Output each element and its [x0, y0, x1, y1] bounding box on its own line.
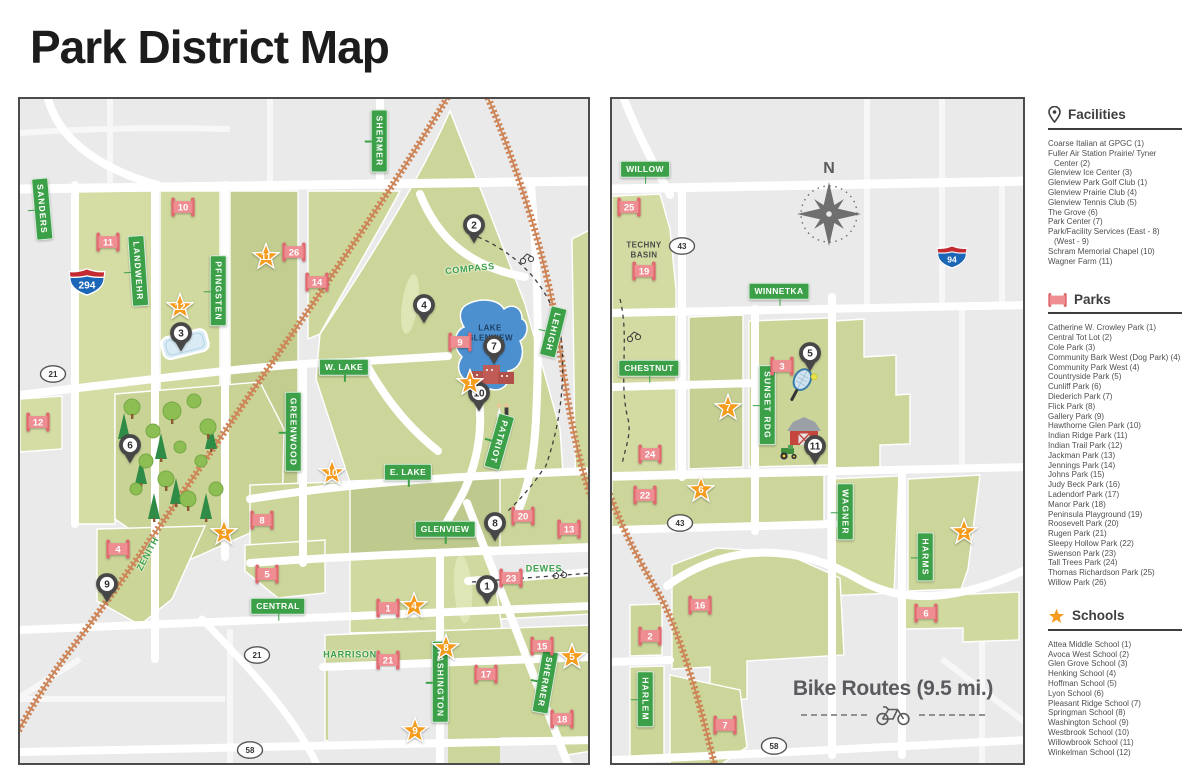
compass-rose: N: [794, 157, 864, 249]
legend-item: Tall Trees Park (24): [1048, 558, 1182, 568]
legend-item: Johns Park (15): [1048, 470, 1182, 480]
school-marker-11: 11: [252, 243, 280, 270]
svg-text:18: 18: [557, 714, 568, 725]
park-marker-1: 1: [376, 599, 400, 618]
facility-marker-6: 6: [118, 434, 142, 464]
route-shield-43: 43: [667, 514, 694, 532]
street-label-chestnut: CHESTNUT: [618, 360, 679, 377]
legend-item: Hoffman School (5): [1048, 679, 1182, 689]
svg-text:11: 11: [261, 252, 272, 263]
svg-text:17: 17: [481, 669, 492, 680]
legend-item: Avoca West School (2): [1048, 650, 1182, 660]
facility-marker-9: 9: [95, 573, 119, 603]
park-marker-9: 9: [448, 333, 472, 352]
legend-item: Indian Ridge Park (11): [1048, 431, 1182, 441]
park-marker-12: 12: [26, 413, 50, 432]
legend-item: Fuller Air Station Prairie/ Tyner Center…: [1048, 149, 1182, 169]
svg-text:8: 8: [492, 519, 498, 530]
svg-text:9: 9: [104, 580, 110, 591]
legend-item: Wagner Farm (11): [1048, 257, 1182, 267]
park-marker-8: 8: [250, 511, 274, 530]
interstate-shield-294: 294: [69, 268, 106, 296]
legend-item: Jackman Park (13): [1048, 451, 1182, 461]
legend-item: Winkelman School (12): [1048, 748, 1182, 758]
svg-text:3: 3: [221, 528, 227, 539]
street-label-wagner: WAGNER: [837, 483, 854, 540]
facility-marker-7: 7: [482, 335, 506, 365]
park-marker-18: 18: [550, 710, 574, 729]
interstate-shield-94: 94: [937, 243, 968, 271]
svg-text:294: 294: [79, 280, 96, 291]
legend-section-facilities: Facilities Coarse Italian at GPGC (1)Ful…: [1048, 106, 1182, 266]
park-marker-5: 5: [255, 565, 279, 584]
route-shield-58: 58: [761, 737, 788, 755]
facility-marker-2: 2: [462, 214, 486, 244]
dashed-line: [801, 714, 867, 716]
legend-item: Willow Park (26): [1048, 578, 1182, 588]
route-shield-58: 58: [237, 741, 264, 759]
bike-routes-note: Bike Routes (9.5 mi.): [777, 677, 1009, 726]
legend-item: Washington School (9): [1048, 718, 1182, 728]
legend-item: Cunliff Park (6): [1048, 382, 1182, 392]
facility-marker-4: 4: [412, 294, 436, 324]
map-panel-east: N Bike Routes (9.5 mi.): [610, 97, 1025, 765]
street-label-harlem: HARLEM: [637, 671, 654, 727]
school-marker-3: 3: [210, 519, 238, 546]
school-star-icon: [1048, 608, 1065, 624]
legend-item: Jennings Park (14): [1048, 461, 1182, 471]
park-marker-14: 14: [305, 273, 329, 292]
svg-text:3: 3: [178, 329, 184, 340]
facility-marker-1: 1: [475, 575, 499, 605]
legend-facilities-list: Coarse Italian at GPGC (1)Fuller Air Sta…: [1048, 139, 1182, 266]
legend-item: Flick Park (8): [1048, 402, 1182, 412]
legend-item: Sleepy Hollow Park (22): [1048, 539, 1182, 549]
divider: [1048, 128, 1182, 130]
legend-item: Peninsula Playground (19): [1048, 510, 1182, 520]
legend-item: Manor Park (18): [1048, 500, 1182, 510]
legend-item: Westbrook School (10): [1048, 728, 1182, 738]
legend-item: Attea Middle School (1): [1048, 640, 1182, 650]
legend-item: Judy Beck Park (16): [1048, 480, 1182, 490]
svg-text:15: 15: [537, 641, 548, 652]
dashed-line: [919, 714, 985, 716]
street-label-glenview: GLENVIEW: [415, 521, 476, 538]
legend-item: Thomas Richardson Park (25): [1048, 568, 1182, 578]
legend: Facilities Coarse Italian at GPGC (1)Ful…: [1048, 106, 1182, 757]
legend-item: Catherine W. Crowley Park (1): [1048, 323, 1182, 333]
street-label-w-lake: W. LAKE: [319, 359, 369, 376]
school-marker-12: 12: [166, 293, 194, 320]
street-label-e-lake: E. LAKE: [384, 464, 432, 481]
legend-item: Schram Memorial Chapel (10): [1048, 247, 1182, 257]
route-shield-43: 43: [669, 237, 696, 255]
school-marker-1: 1: [456, 369, 484, 396]
svg-text:10: 10: [326, 468, 338, 479]
street-label-dewes: DEWES: [521, 562, 568, 577]
park-marker-icon: [1048, 293, 1067, 307]
legend-item: Central Tot Lot (2): [1048, 333, 1182, 343]
facility-pin-icon: [1048, 106, 1061, 123]
facility-marker-5: 5: [798, 342, 822, 372]
legend-item: Glenview Prairie Club (4): [1048, 188, 1182, 198]
park-marker-10: 10: [171, 198, 195, 217]
svg-text:5: 5: [807, 349, 813, 360]
legend-parks-list: Catherine W. Crowley Park (1)Central Tot…: [1048, 323, 1182, 588]
park-marker-26: 26: [282, 243, 306, 262]
svg-text:21: 21: [383, 655, 394, 666]
school-marker-4: 4: [400, 592, 428, 619]
park-marker-19: 19: [632, 262, 656, 281]
svg-text:4: 4: [421, 301, 427, 312]
svg-text:6: 6: [698, 485, 704, 496]
street-label-winnetka: WINNETKA: [749, 283, 810, 300]
school-marker-10: 10: [318, 459, 346, 486]
svg-text:94: 94: [947, 254, 957, 264]
facility-marker-11: 11: [803, 435, 827, 465]
park-marker-24: 24: [638, 445, 662, 464]
street-label-central: CENTRAL: [250, 598, 305, 615]
facility-marker-3: 3: [169, 322, 193, 352]
school-marker-2: 2: [950, 518, 978, 545]
area-label-techny-basin: TECHNY BASIN: [626, 240, 661, 259]
legend-item: Swenson Park (23): [1048, 549, 1182, 559]
svg-text:21: 21: [49, 370, 58, 379]
legend-item: Community Bark West (Dog Park) (4): [1048, 353, 1182, 363]
svg-text:9: 9: [412, 726, 418, 737]
svg-text:5: 5: [264, 569, 270, 580]
route-shield-21: 21: [40, 365, 67, 383]
park-marker-13: 13: [557, 520, 581, 539]
street-label-harrison: HARRISON: [318, 648, 382, 663]
svg-text:1: 1: [484, 582, 490, 593]
street-label-harms: HARMS: [917, 532, 934, 581]
legend-item: Glenview Park Golf Club (1): [1048, 178, 1182, 188]
park-marker-7: 7: [713, 716, 737, 735]
route-shield-21: 21: [244, 646, 271, 664]
facility-marker-8: 8: [483, 512, 507, 542]
street-label-pfingsten: PFINGSTEN: [210, 255, 227, 326]
bike-routes-label: Bike Routes (9.5 mi.): [777, 677, 1009, 701]
legend-item: Rugen Park (21): [1048, 529, 1182, 539]
legend-item: Park/Facility Services (East - 8) (West …: [1048, 227, 1182, 247]
street-label-greenwood: GREENWOOD: [285, 392, 302, 472]
street-label-sunset-rdg: SUNSET RDG: [759, 365, 776, 445]
legend-item: Diederich Park (7): [1048, 392, 1182, 402]
svg-text:6: 6: [923, 608, 928, 619]
park-marker-2: 2: [638, 627, 662, 646]
school-marker-7: 7: [714, 394, 742, 421]
svg-text:6: 6: [127, 441, 133, 452]
svg-text:8: 8: [443, 643, 449, 654]
legend-item: Glenview Tennis Club (5): [1048, 198, 1182, 208]
legend-item: Countryside Park (5): [1048, 372, 1182, 382]
svg-text:7: 7: [722, 720, 727, 731]
legend-item: Pleasant Ridge School (7): [1048, 699, 1182, 709]
legend-section-parks: Parks Catherine W. Crowley Park (1)Centr…: [1048, 292, 1182, 588]
svg-text:11: 11: [810, 442, 821, 453]
svg-text:22: 22: [640, 490, 651, 501]
svg-text:20: 20: [518, 511, 529, 522]
legend-item: Ladendorf Park (17): [1048, 490, 1182, 500]
svg-text:58: 58: [246, 746, 255, 755]
svg-text:11: 11: [103, 237, 114, 248]
park-marker-25: 25: [617, 198, 641, 217]
park-marker-4: 4: [106, 540, 130, 559]
legend-item: Lyon School (6): [1048, 689, 1182, 699]
park-marker-17: 17: [474, 665, 498, 684]
legend-item: Willowbrook School (11): [1048, 738, 1182, 748]
svg-text:58: 58: [770, 742, 779, 751]
school-marker-6: 6: [687, 476, 715, 503]
svg-text:24: 24: [645, 449, 656, 460]
school-marker-8: 8: [432, 634, 460, 661]
bicycle-icon: [875, 704, 911, 726]
svg-text:9: 9: [457, 337, 462, 348]
legend-heading-parks: Parks: [1074, 292, 1111, 307]
legend-item: Roosevelt Park (20): [1048, 519, 1182, 529]
park-marker-6: 6: [914, 604, 938, 623]
park-marker-15: 15: [530, 637, 554, 656]
legend-heading-facilities: Facilities: [1068, 107, 1126, 122]
park-marker-23: 23: [499, 569, 523, 588]
svg-text:7: 7: [491, 342, 497, 353]
legend-item: Glen Grove School (3): [1048, 659, 1182, 669]
park-marker-11: 11: [96, 233, 120, 252]
svg-text:3: 3: [779, 361, 784, 372]
svg-text:1: 1: [385, 603, 391, 614]
svg-text:19: 19: [639, 266, 650, 277]
svg-text:7: 7: [725, 403, 731, 414]
legend-item: Park Center (7): [1048, 217, 1182, 227]
park-marker-20: 20: [511, 507, 535, 526]
svg-text:43: 43: [676, 519, 685, 528]
legend-item: Springman School (8): [1048, 708, 1182, 718]
north-indicator: N: [823, 160, 835, 177]
street-label-willow: WILLOW: [620, 161, 670, 178]
svg-text:12: 12: [33, 417, 44, 428]
svg-text:10: 10: [178, 202, 189, 213]
legend-item: Gallery Park (9): [1048, 412, 1182, 422]
svg-text:1: 1: [467, 378, 473, 389]
svg-text:14: 14: [312, 277, 323, 288]
svg-text:2: 2: [961, 527, 967, 538]
svg-text:16: 16: [695, 600, 706, 611]
divider: [1048, 629, 1182, 631]
svg-text:4: 4: [115, 544, 121, 555]
svg-text:25: 25: [624, 202, 635, 213]
legend-item: Glenview Ice Center (3): [1048, 168, 1182, 178]
legend-item: Indian Trail Park (12): [1048, 441, 1182, 451]
legend-item: Community Park West (4): [1048, 363, 1182, 373]
svg-text:26: 26: [289, 247, 300, 258]
legend-schools-list: Attea Middle School (1)Avoca West School…: [1048, 640, 1182, 758]
svg-text:2: 2: [471, 221, 477, 232]
legend-heading-schools: Schools: [1072, 608, 1125, 623]
school-marker-5: 5: [558, 643, 586, 670]
svg-text:2: 2: [647, 631, 652, 642]
svg-text:43: 43: [678, 242, 687, 251]
page: Park District Map: [0, 0, 1200, 779]
legend-section-schools: Schools Attea Middle School (1)Avoca Wes…: [1048, 608, 1182, 758]
svg-text:5: 5: [569, 652, 575, 663]
legend-item: Hawthorne Glen Park (10): [1048, 421, 1182, 431]
svg-text:8: 8: [259, 515, 264, 526]
park-marker-3: 3: [770, 357, 794, 376]
page-title: Park District Map: [30, 24, 389, 70]
map-panel-west: SANDERSLANDWEHRPFINGSTENSHERMERW. LAKELE…: [18, 97, 590, 765]
divider: [1048, 312, 1182, 314]
legend-item: Henking School (4): [1048, 669, 1182, 679]
street-label-shermer: SHERMER: [371, 110, 388, 173]
park-marker-22: 22: [633, 486, 657, 505]
svg-text:13: 13: [564, 524, 575, 535]
legend-item: The Grove (6): [1048, 208, 1182, 218]
svg-text:12: 12: [174, 302, 186, 313]
school-marker-9: 9: [401, 717, 429, 744]
svg-text:21: 21: [253, 651, 262, 660]
park-marker-16: 16: [688, 596, 712, 615]
svg-text:23: 23: [506, 573, 517, 584]
svg-text:4: 4: [411, 601, 417, 612]
legend-item: Cole Park (3): [1048, 343, 1182, 353]
park-marker-21: 21: [376, 651, 400, 670]
legend-item: Coarse Italian at GPGC (1): [1048, 139, 1182, 149]
